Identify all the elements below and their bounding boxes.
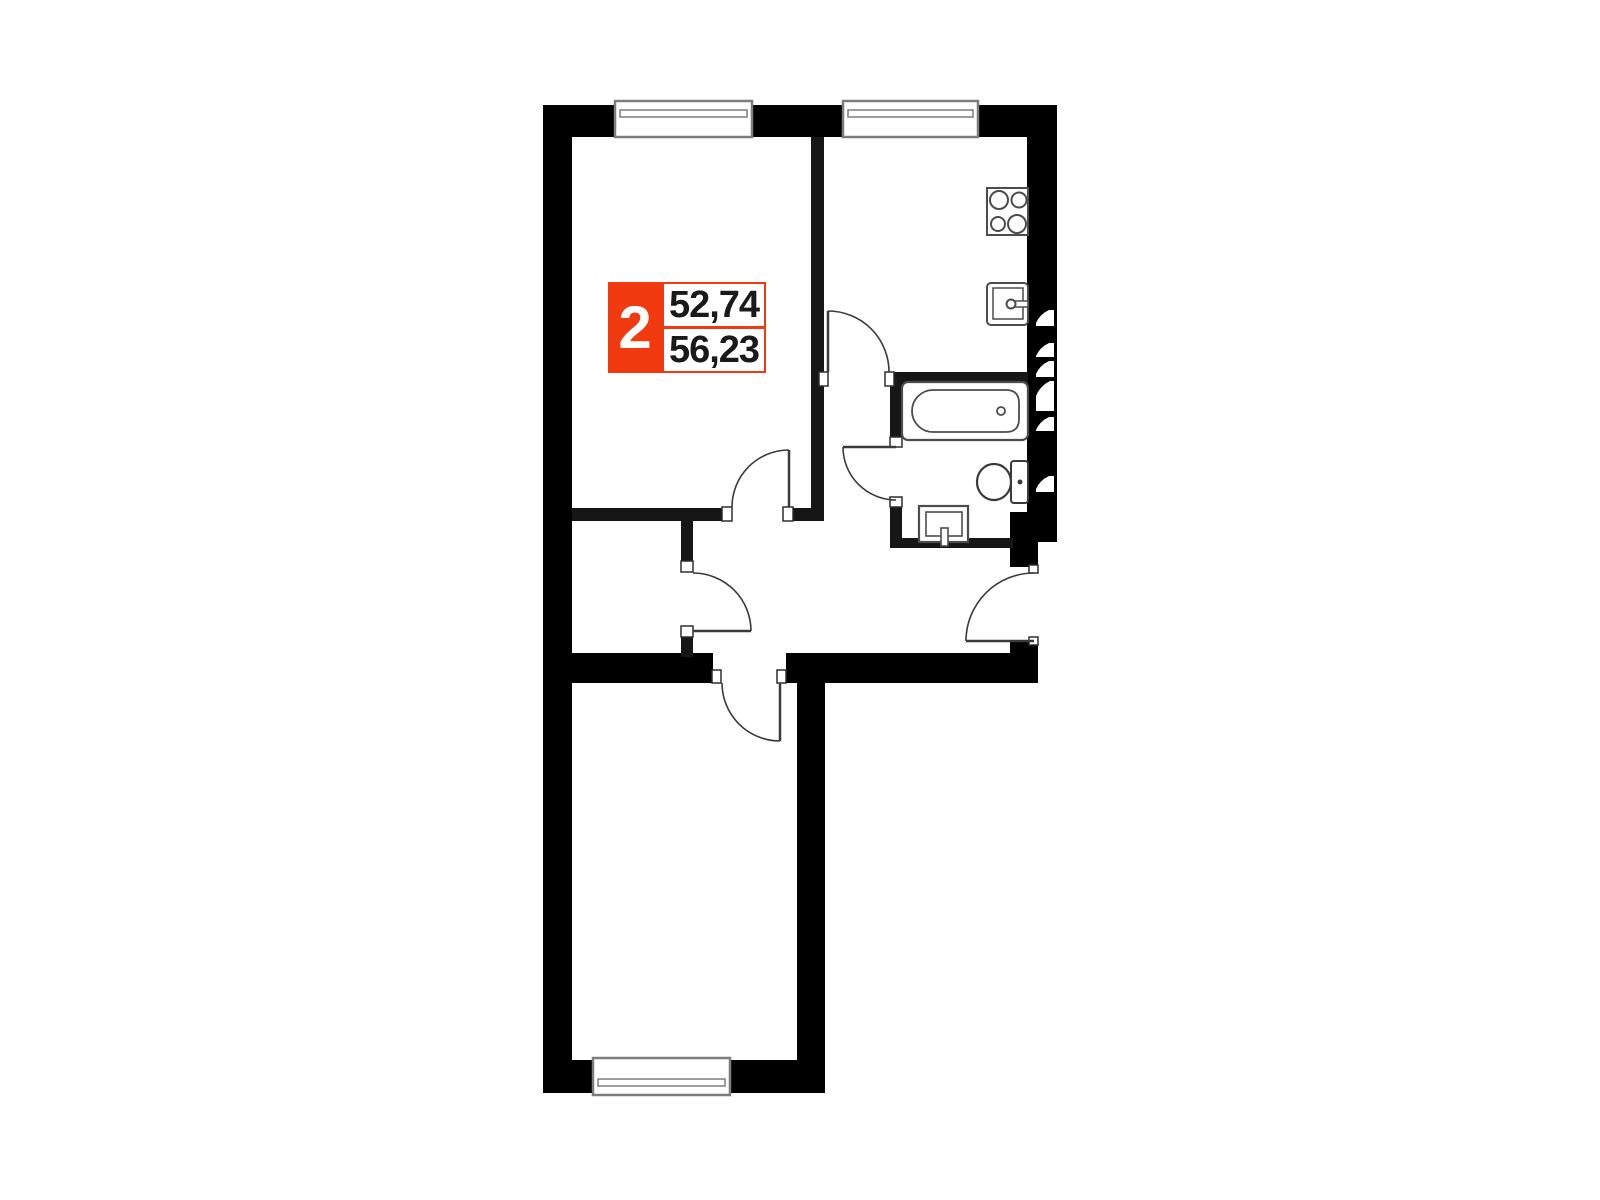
- washbasin-icon: [919, 506, 968, 546]
- floorplan-canvas: 2 52,74 56,23: [0, 0, 1600, 1200]
- door-swing-icon-entrance: [966, 573, 1034, 641]
- vent-icon: [1036, 476, 1054, 492]
- unit-rooms-badge: 2: [608, 282, 662, 373]
- vent-icon: [1036, 343, 1054, 357]
- stove-icon: [987, 188, 1028, 235]
- window-icon-top-right: [843, 101, 978, 137]
- door-swing-icon-bedroom: [732, 450, 789, 507]
- vent-icon: [1036, 361, 1054, 377]
- vent-icon: [1036, 417, 1054, 431]
- vent-icon: [1036, 381, 1054, 411]
- floor-plan: [0, 0, 1600, 1200]
- door-swing-icon-bottom-room: [722, 683, 780, 741]
- door-swing-icon-bathroom: [843, 447, 896, 500]
- unit-area-living: 52,74: [662, 282, 766, 328]
- window-icon-bottom: [593, 1058, 730, 1095]
- unit-info-card: 2 52,74 56,23: [608, 282, 766, 373]
- door-swing-icon-kitchen: [828, 311, 889, 372]
- window-icon-top-left: [615, 101, 752, 137]
- vent-icon: [1036, 310, 1054, 326]
- unit-areas: 52,74 56,23: [662, 282, 766, 373]
- toilet-icon: [977, 461, 1028, 503]
- door-swing-icon-storage: [693, 573, 751, 631]
- unit-area-total: 56,23: [662, 327, 766, 373]
- bathtub-icon: [902, 382, 1028, 440]
- kitchen-sink-icon: [987, 283, 1028, 325]
